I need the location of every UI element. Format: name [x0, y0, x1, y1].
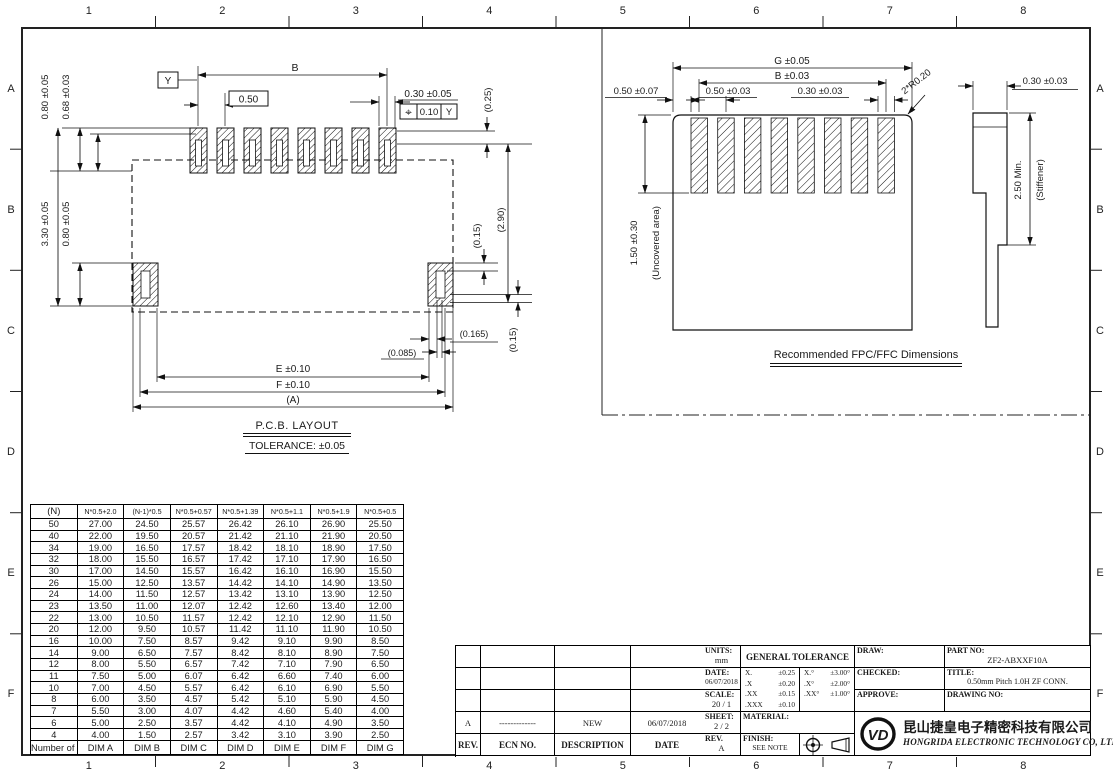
datum-y-label: Y	[165, 76, 172, 87]
table-cell: 7.90	[310, 659, 357, 671]
table-cell: 22	[31, 612, 78, 624]
header-formula-e: N*0.5+1.1	[264, 505, 311, 519]
table-cell: 8.10	[264, 647, 311, 659]
table-cell: 11.00	[124, 600, 171, 612]
footer-dim-a: DIM A	[77, 741, 124, 755]
table-cell: 5.00	[124, 670, 171, 682]
header-formula-a: N*0.5+2.0	[77, 505, 124, 519]
table-cell: 21.42	[217, 530, 264, 542]
dim-pad-width: 0.30 ±0.05	[404, 89, 452, 100]
dim-g: G ±0.05	[774, 56, 810, 67]
footer-dim-e: DIM E	[264, 741, 311, 755]
date-label: DATE:	[703, 668, 740, 677]
table-row: 5027.0024.5025.5726.4226.1026.9025.50	[31, 519, 404, 531]
table-cell: 6.90	[310, 682, 357, 694]
table-cell: 5.10	[264, 694, 311, 706]
footer-contacts: Number of Contacts	[31, 741, 78, 755]
dim-330-left: 3.30 ±0.05	[40, 202, 51, 247]
table-cell: 7	[31, 705, 78, 717]
tol-val: ±0.15	[778, 689, 795, 700]
checked-label: CHECKED:	[855, 668, 944, 677]
date-cell: DATE: 06/07/2018	[703, 668, 741, 690]
footer-dim-g: DIM G	[357, 741, 404, 755]
projection-symbol-cell	[800, 734, 855, 756]
table-cell: 14	[31, 647, 78, 659]
finish-label: FINISH:	[741, 734, 799, 743]
table-cell: 4.42	[217, 705, 264, 717]
table-cell: 15.00	[77, 577, 124, 589]
zone-label: 6	[753, 760, 759, 772]
dim-e: E ±0.10	[276, 364, 311, 375]
dim-f: F ±0.10	[276, 380, 310, 391]
table-cell: 9.50	[124, 624, 171, 636]
table-cell: 10.50	[357, 624, 404, 636]
zone-label: 8	[1020, 760, 1026, 772]
zone-label: 6	[753, 5, 759, 17]
table-cell: 26	[31, 577, 78, 589]
zone-label: 1	[86, 760, 92, 772]
pcb-title-text: P.C.B. LAYOUT	[255, 420, 338, 432]
zone-label: F	[8, 688, 15, 700]
material-label: MATERIAL:	[741, 712, 854, 721]
table-cell: 13.50	[357, 577, 404, 589]
table-cell: 7.57	[170, 647, 217, 659]
table-cell: 15.57	[170, 565, 217, 577]
table-cell: 4.07	[170, 705, 217, 717]
table-cell: 12.60	[264, 600, 311, 612]
table-cell: 3.57	[170, 717, 217, 729]
header-formula-f: N*0.5+1.9	[310, 505, 357, 519]
zone-label: 5	[620, 760, 626, 772]
table-cell: 7.42	[217, 659, 264, 671]
pcb-dimension-lines	[58, 75, 518, 407]
table-row: 149.006.507.578.428.108.907.50	[31, 647, 404, 659]
dim-radius: 2*R0.20	[900, 67, 934, 97]
table-cell: 17.42	[217, 554, 264, 566]
tol-val: ±3.00°	[830, 668, 850, 679]
table-cell: 3.50	[357, 717, 404, 729]
revision-table: A ------------- NEW 06/07/2018 REV. ECN …	[455, 645, 705, 757]
header-formula-g: N*0.5+0.5	[357, 505, 404, 519]
pitch-dim-box: 0.50	[229, 91, 268, 106]
table-cell: 50	[31, 519, 78, 531]
dim-080-left: 0.80 ±0.05	[61, 202, 72, 247]
approve-label: APPROVE:	[855, 690, 944, 699]
table-row: 2012.009.5010.5711.4211.1011.9010.50	[31, 624, 404, 636]
zone-label: A	[7, 83, 14, 95]
pcb-tolerance-text: TOLERANCE: ±0.05	[249, 440, 345, 452]
zone-label: E	[1096, 567, 1103, 579]
table-cell: 14.42	[217, 577, 264, 589]
table-cell: 11	[31, 670, 78, 682]
revision-date: 06/07/2018	[631, 712, 704, 734]
table-cell: 3.00	[124, 705, 171, 717]
dim-stiffener: 2.50 Min.	[1013, 160, 1024, 199]
table-cell: 6.00	[77, 694, 124, 706]
table-row: 4022.0019.5020.5721.4221.1021.9020.50	[31, 530, 404, 542]
revision-ecn: -------------	[481, 712, 555, 734]
table-cell: 6.42	[217, 682, 264, 694]
dim-b: B	[291, 62, 298, 74]
table-cell: 11.90	[310, 624, 357, 636]
title-label: TITLE:	[945, 668, 1090, 677]
units-label: UNITS:	[703, 646, 740, 655]
table-cell: 18.42	[217, 542, 264, 554]
table-cell: 4.00	[77, 729, 124, 741]
tol-sym: X.	[745, 668, 752, 679]
part-no-value: ZF2-ABXXF10A	[945, 655, 1090, 665]
dim-thickness: 0.30 ±0.03	[1023, 76, 1068, 87]
zone-label: 8	[1020, 5, 1026, 17]
table-cell: 4.00	[357, 705, 404, 717]
table-cell: 22.00	[77, 530, 124, 542]
fcf-datum-ref: Y	[446, 107, 453, 118]
table-cell: 12	[31, 659, 78, 671]
table-cell: 8.50	[357, 635, 404, 647]
table-cell: 6.00	[357, 670, 404, 682]
material-cell: MATERIAL:	[741, 712, 855, 734]
table-cell: 16.90	[310, 565, 357, 577]
dim-a: (A)	[286, 395, 299, 406]
table-cell: 14.90	[310, 577, 357, 589]
table-cell: 6.50	[124, 647, 171, 659]
zone-label: 3	[353, 5, 359, 17]
title-cell: TITLE: 0.50mm Pitch 1.0H ZF CONN.	[945, 668, 1091, 690]
contacts-dimension-table: (N) N*0.5+2.0 (N-1)*0.5 N*0.5+0.57 N*0.5…	[30, 504, 404, 755]
table-cell: 2.50	[357, 729, 404, 741]
table-row: 107.004.505.576.426.106.905.50	[31, 682, 404, 694]
table-cell: 5.40	[310, 705, 357, 717]
table-cell: 6	[31, 717, 78, 729]
table-cell: 14.50	[124, 565, 171, 577]
rev-value: A	[703, 743, 740, 753]
table-cell: 10.57	[170, 624, 217, 636]
table-header-row: (N) N*0.5+2.0 (N-1)*0.5 N*0.5+0.57 N*0.5…	[31, 505, 404, 519]
table-cell: 16.42	[217, 565, 264, 577]
table-cell: 15.50	[357, 565, 404, 577]
table-cell: 6.60	[264, 670, 311, 682]
table-cell: 27.00	[77, 519, 124, 531]
footer-dim-c: DIM C	[170, 741, 217, 755]
drawing-sheet: Y ⌖ 0.10 Y 0.50 B 0.30 ±0.05 (0.25) (2.9…	[0, 0, 1113, 778]
dim-068-top: 0.68 ±0.03	[61, 75, 72, 120]
table-cell: 9.42	[217, 635, 264, 647]
tol-val: ±1.00°	[830, 689, 850, 700]
table-cell: 21.90	[310, 530, 357, 542]
table-cell: 23	[31, 600, 78, 612]
dim-050-pitch: 0.50 ±0.03	[706, 86, 751, 97]
drawing-no-cell: DRAWING NO:	[945, 690, 1091, 712]
fcf-position-icon: ⌖	[405, 105, 412, 119]
rev-label: REV.	[703, 734, 740, 743]
table-cell: 4.50	[357, 694, 404, 706]
dim-050-left: 0.50 ±0.07	[614, 86, 659, 97]
table-row: 2213.0010.5011.5712.4212.1012.9011.50	[31, 612, 404, 624]
approve-cell: APPROVE:	[855, 690, 945, 712]
units-value: mm	[703, 655, 740, 665]
table-cell: 9.00	[77, 647, 124, 659]
table-cell: 12.90	[310, 612, 357, 624]
table-cell: 26.90	[310, 519, 357, 531]
zone-label: B	[7, 204, 14, 216]
dim-290: (2.90)	[496, 208, 507, 233]
finish-cell: FINISH: SEE NOTE	[741, 734, 800, 756]
zone-label: D	[7, 446, 15, 458]
table-cell: 6.57	[170, 659, 217, 671]
table-cell: 6.50	[357, 659, 404, 671]
table-cell: 10.00	[77, 635, 124, 647]
table-cell: 24.50	[124, 519, 171, 531]
table-row: 3017.0014.5015.5716.4216.1016.9015.50	[31, 565, 404, 577]
table-cell: 25.57	[170, 519, 217, 531]
table-cell: 12.42	[217, 612, 264, 624]
table-cell: 17.90	[310, 554, 357, 566]
table-cell: 8.90	[310, 647, 357, 659]
projection-symbol-icon	[801, 735, 853, 755]
table-cell: 18.00	[77, 554, 124, 566]
table-cell: 17.50	[357, 542, 404, 554]
table-cell: 9.10	[264, 635, 311, 647]
table-cell: 17.00	[77, 565, 124, 577]
draw-cell: DRAW:	[855, 646, 945, 668]
fpc-title-text: Recommended FPC/FFC Dimensions	[774, 349, 959, 361]
position-tolerance-frame: ⌖ 0.10 Y	[400, 104, 457, 119]
tol-sym: X.°	[804, 668, 814, 679]
table-cell: 7.50	[77, 670, 124, 682]
table-row: 3218.0015.5016.5717.4217.1017.9016.50	[31, 554, 404, 566]
table-cell: 3.42	[217, 729, 264, 741]
header-n: (N)	[31, 505, 78, 519]
table-cell: 19.00	[77, 542, 124, 554]
table-row: 128.005.506.577.427.107.906.50	[31, 659, 404, 671]
table-cell: 20.50	[357, 530, 404, 542]
table-cell: 20	[31, 624, 78, 636]
table-row: 3419.0016.5017.5718.4218.1018.9017.50	[31, 542, 404, 554]
fcf-tolerance-value: 0.10	[420, 107, 439, 118]
zone-label: 4	[486, 760, 492, 772]
table-cell: 4.10	[264, 717, 311, 729]
table-cell: 11.50	[357, 612, 404, 624]
table-cell: 13.40	[310, 600, 357, 612]
zone-label: 7	[887, 760, 893, 772]
table-cell: 11.10	[264, 624, 311, 636]
table-cell: 8.42	[217, 647, 264, 659]
table-cell: 5.50	[357, 682, 404, 694]
table-cell: 5.00	[77, 717, 124, 729]
table-cell: 13.42	[217, 589, 264, 601]
pcb-extension-lines	[50, 66, 532, 412]
dim-030-finger: 0.30 ±0.03	[798, 86, 843, 97]
table-cell: 25.50	[357, 519, 404, 531]
table-cell: 6.10	[264, 682, 311, 694]
header-formula-b: (N-1)*0.5	[124, 505, 171, 519]
table-cell: 5.57	[170, 682, 217, 694]
pcb-pads	[133, 128, 453, 306]
tol-val: ±0.25	[778, 668, 795, 679]
table-cell: 14.10	[264, 577, 311, 589]
table-row: 2313.5011.0012.0712.4212.6013.4012.00	[31, 600, 404, 612]
dim-015-bottom: (0.15)	[508, 328, 519, 353]
dim-015-right: (0.15)	[472, 224, 483, 249]
revision-header-rev: REV.	[456, 734, 481, 756]
table-row: 1610.007.508.579.429.109.908.50	[31, 635, 404, 647]
part-no-cell: PART NO: ZF2-ABXXF10A	[945, 646, 1091, 668]
table-cell: 12.07	[170, 600, 217, 612]
zone-label: 4	[486, 5, 492, 17]
dim-uncovered: 1.50 ±0.30	[629, 221, 640, 266]
table-cell: 17.57	[170, 542, 217, 554]
table-cell: 12.50	[124, 577, 171, 589]
uncovered-area-label: (Uncovered area)	[651, 206, 662, 280]
sheet-label: SHEET:	[703, 712, 740, 721]
table-cell: 8	[31, 694, 78, 706]
table-row: 2615.0012.5013.5714.4214.1014.9013.50	[31, 577, 404, 589]
company-cell: VD 昆山捷皇电子精密科技有限公司 HONGRIDA ELECTRONIC TE…	[855, 712, 1091, 756]
table-cell: 24	[31, 589, 78, 601]
scale-value: 20 / 1	[703, 699, 740, 709]
stiffener-label: (Stiffener)	[1035, 159, 1046, 201]
zone-label: C	[7, 325, 15, 337]
datum-y-flag: Y	[158, 72, 197, 88]
table-cell: 2.50	[124, 717, 171, 729]
table-cell: 18.10	[264, 542, 311, 554]
dim-025: (0.25)	[483, 88, 494, 113]
table-cell: 7.50	[124, 635, 171, 647]
table-cell: 4.42	[217, 717, 264, 729]
table-cell: 8.57	[170, 635, 217, 647]
header-formula-d: N*0.5+1.39	[217, 505, 264, 519]
title-block: UNITS: mm DATE: 06/07/2018 SCALE: 20 / 1…	[703, 645, 1091, 757]
table-cell: 3.90	[310, 729, 357, 741]
table-cell: 30	[31, 565, 78, 577]
dim-b-fpc: B ±0.03	[775, 71, 810, 82]
zone-label: B	[1096, 204, 1103, 216]
rev-cell: REV. A	[703, 734, 741, 756]
table-cell: 10	[31, 682, 78, 694]
table-cell: 12.00	[357, 600, 404, 612]
table-row: 44.001.502.573.423.103.902.50	[31, 729, 404, 741]
table-cell: 7.50	[357, 647, 404, 659]
table-cell: 9.90	[310, 635, 357, 647]
table-cell: 1.50	[124, 729, 171, 741]
table-cell: 4.90	[310, 717, 357, 729]
checked-cell: CHECKED:	[855, 668, 945, 690]
sheet-cell: SHEET: 2 / 2	[703, 712, 741, 734]
table-cell: 16.50	[124, 542, 171, 554]
table-footer-row: Number of Contacts DIM A DIM B DIM C DIM…	[31, 741, 404, 755]
tol-val: ±0.10	[778, 700, 795, 711]
table-cell: 2.57	[170, 729, 217, 741]
tol-sym: .XX	[745, 689, 757, 700]
zone-label: 5	[620, 5, 626, 17]
zone-label: 2	[219, 760, 225, 772]
dim-0085: (0.085)	[388, 348, 417, 358]
table-cell: 5.90	[310, 694, 357, 706]
company-name-en: HONGRIDA ELECTRONIC TECHNOLOGY CO, LTD.	[903, 736, 1113, 748]
zone-label: F	[1097, 688, 1104, 700]
table-cell: 13.00	[77, 612, 124, 624]
scale-label: SCALE:	[703, 690, 740, 699]
zone-label: A	[1096, 83, 1103, 95]
title-value: 0.50mm Pitch 1.0H ZF CONN.	[945, 677, 1090, 687]
table-cell: 11.50	[124, 589, 171, 601]
table-cell: 26.10	[264, 519, 311, 531]
footer-dim-d: DIM D	[217, 741, 264, 755]
table-row: 86.003.504.575.425.105.904.50	[31, 694, 404, 706]
general-tolerance-header: GENERAL TOLERANCE	[741, 646, 855, 668]
table-cell: 12.00	[77, 624, 124, 636]
table-cell: 32	[31, 554, 78, 566]
table-cell: 13.10	[264, 589, 311, 601]
scale-cell: SCALE: 20 / 1	[703, 690, 741, 712]
footer-dim-f: DIM F	[310, 741, 357, 755]
footer-dim-b: DIM B	[124, 741, 171, 755]
table-cell: 8.00	[77, 659, 124, 671]
zone-label: 3	[353, 760, 359, 772]
table-cell: 16	[31, 635, 78, 647]
table-cell: 40	[31, 530, 78, 542]
table-cell: 3.10	[264, 729, 311, 741]
table-row: 117.505.006.076.426.607.406.00	[31, 670, 404, 682]
revision-header-date: DATE	[631, 734, 704, 756]
tolerance-linear-cell: X.±0.25 .X±0.20 .XX±0.15 .XXX±0.10	[741, 668, 800, 712]
ffc-side-profile	[973, 113, 1007, 327]
zone-label: D	[1096, 446, 1104, 458]
table-cell: 7.40	[310, 670, 357, 682]
table-cell: 16.10	[264, 565, 311, 577]
drawing-no-label: DRAWING NO:	[945, 690, 1090, 699]
table-cell: 4.57	[170, 694, 217, 706]
table-cell: 13.57	[170, 577, 217, 589]
table-cell: 12.57	[170, 589, 217, 601]
table-cell: 21.10	[264, 530, 311, 542]
table-cell: 18.90	[310, 542, 357, 554]
table-cell: 14.00	[77, 589, 124, 601]
pitch-dim-label: 0.50	[239, 95, 259, 106]
table-row: 65.002.503.574.424.104.903.50	[31, 717, 404, 729]
table-cell: 11.57	[170, 612, 217, 624]
table-row: 75.503.004.074.424.605.404.00	[31, 705, 404, 717]
zone-label: C	[1096, 325, 1104, 337]
table-cell: 13.50	[77, 600, 124, 612]
draw-label: DRAW:	[855, 646, 944, 655]
table-cell: 3.50	[124, 694, 171, 706]
table-cell: 4	[31, 729, 78, 741]
zone-label: 7	[887, 5, 893, 17]
header-formula-c: N*0.5+0.57	[170, 505, 217, 519]
dim-0165: (0.165)	[460, 329, 489, 339]
tol-sym: .XX°	[804, 689, 819, 700]
zone-label: E	[7, 567, 14, 579]
pcb-view-title: P.C.B. LAYOUT TOLERANCE: ±0.05	[243, 420, 351, 454]
table-cell: 12.50	[357, 589, 404, 601]
fpc-body	[673, 115, 912, 330]
date-value: 06/07/2018	[703, 677, 740, 687]
revision-rev: A	[456, 712, 481, 734]
tol-val: ±2.00°	[830, 679, 850, 690]
units-cell: UNITS: mm	[703, 646, 741, 668]
company-logo-icon: VD	[859, 715, 897, 753]
table-cell: 12.42	[217, 600, 264, 612]
table-cell: 10.50	[124, 612, 171, 624]
table-cell: 7.10	[264, 659, 311, 671]
tolerance-angular-cell: X.°±3.00° .X°±2.00° .XX°±1.00°	[800, 668, 855, 712]
zone-label: 1	[86, 5, 92, 17]
table-cell: 19.50	[124, 530, 171, 542]
revision-description: NEW	[555, 712, 631, 734]
tol-sym: .X	[745, 679, 752, 690]
company-name-cn: 昆山捷皇电子精密科技有限公司	[903, 719, 1113, 736]
